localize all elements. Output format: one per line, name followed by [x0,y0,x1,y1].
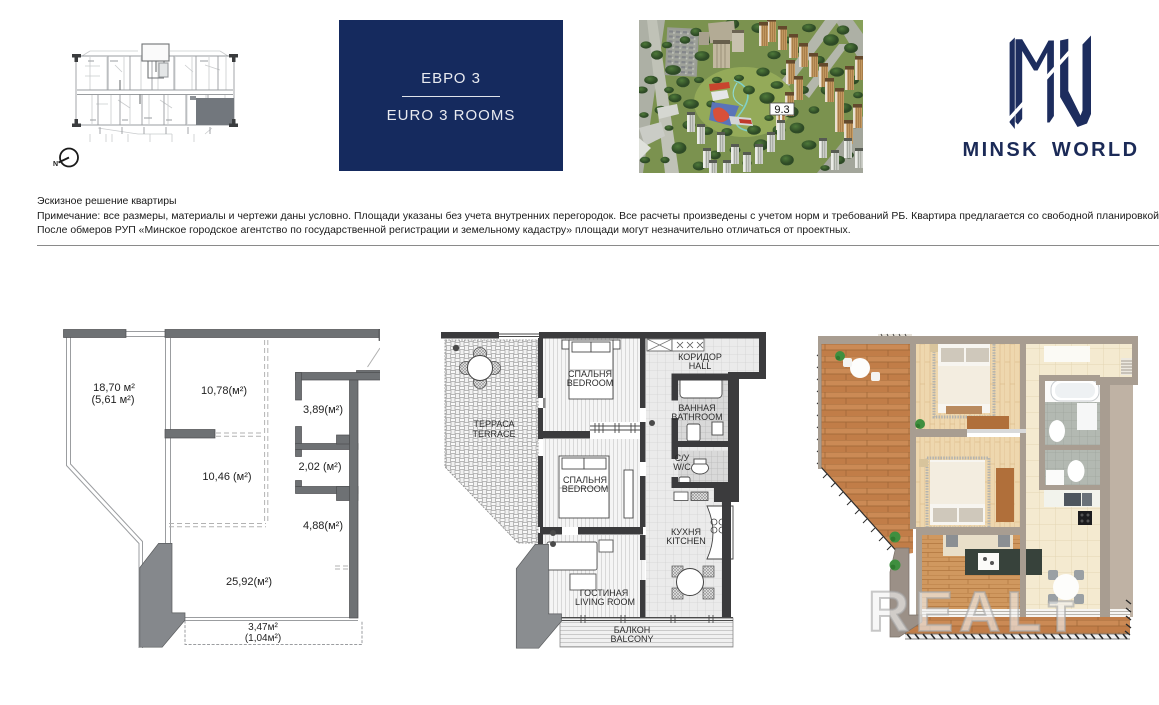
svg-text:BEDROOM: BEDROOM [567,378,614,388]
svg-text:(1,04м²): (1,04м²) [245,633,281,644]
svg-text:KITCHEN: KITCHEN [666,536,706,546]
svg-text:BEDROOM: BEDROOM [562,484,609,494]
svg-text:TERRACE: TERRACE [472,429,515,439]
svg-text:(5,61 м²): (5,61 м²) [91,394,134,406]
svg-text:4,88(м²): 4,88(м²) [303,520,343,532]
svg-text:10,78(м²): 10,78(м²) [201,385,247,397]
svg-text:ТЕРРАСА: ТЕРРАСА [473,419,514,429]
svg-text:3,89(м²): 3,89(м²) [303,404,343,416]
svg-text:2,02 (м²): 2,02 (м²) [298,461,341,473]
svg-text:LIVING ROOM: LIVING ROOM [575,597,635,607]
svg-text:HALL: HALL [689,361,712,371]
svg-text:BATHROOM: BATHROOM [671,412,722,422]
svg-text:10,46 (м²): 10,46 (м²) [202,471,251,483]
svg-text:W/C: W/C [673,462,691,472]
svg-text:BALCONY: BALCONY [610,634,653,644]
svg-text:N: N [53,161,58,168]
svg-text:18,70 м²: 18,70 м² [93,382,135,394]
svg-text:9.3: 9.3 [774,104,789,116]
svg-text:3,47м²: 3,47м² [248,622,278,633]
svg-text:25,92(м²): 25,92(м²) [226,576,272,588]
